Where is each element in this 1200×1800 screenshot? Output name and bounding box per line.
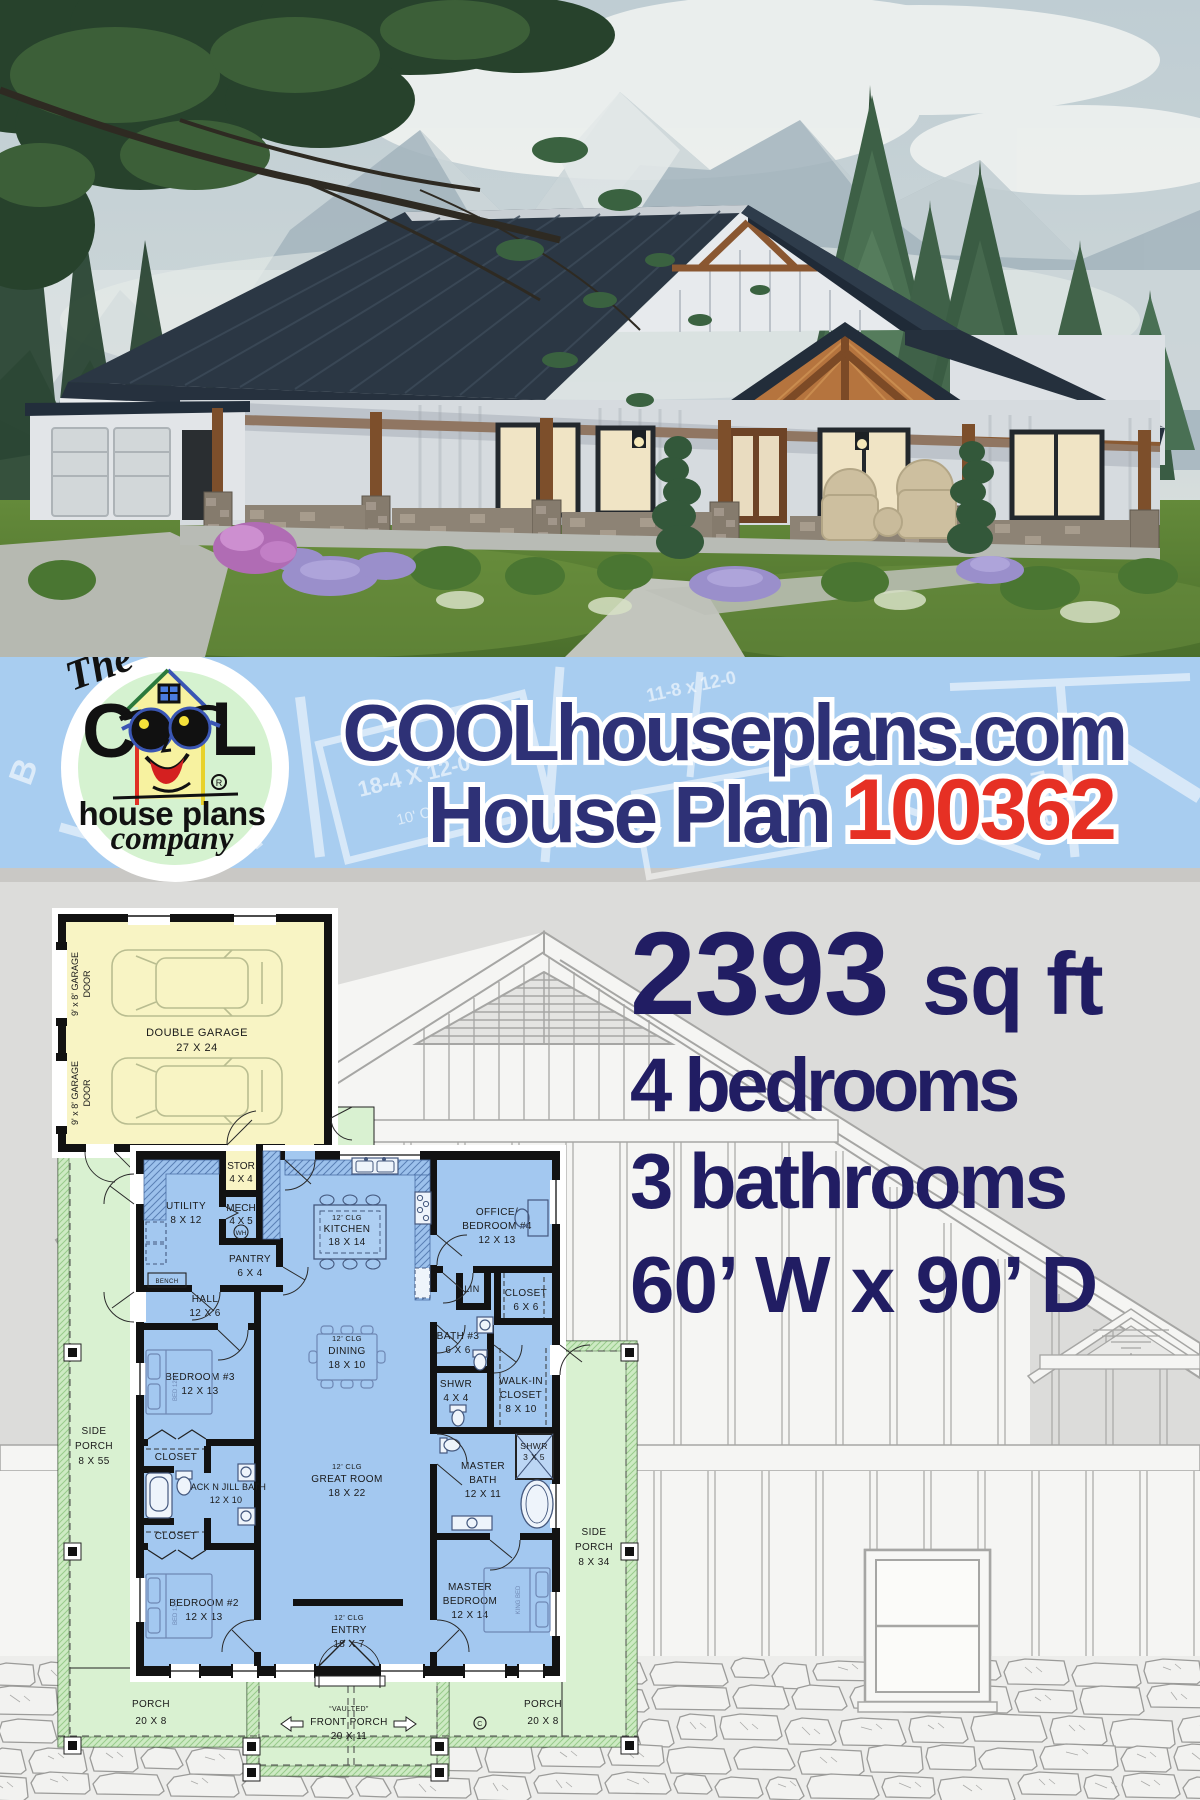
- svg-text:JACK N JILL BATH: JACK N JILL BATH: [186, 1482, 266, 1492]
- svg-text:12’ CLG: 12’ CLG: [332, 1334, 362, 1343]
- svg-text:WALK-IN: WALK-IN: [499, 1376, 543, 1387]
- svg-text:SHWR: SHWR: [520, 1441, 548, 1451]
- svg-text:SIDE: SIDE: [582, 1527, 607, 1538]
- svg-text:BEDROOM #2: BEDROOM #2: [169, 1598, 239, 1609]
- svg-text:12 X 13: 12 X 13: [185, 1612, 222, 1623]
- svg-text:BENCH: BENCH: [155, 1279, 178, 1285]
- svg-text:PORCH: PORCH: [75, 1441, 113, 1452]
- svg-text:20 X 8: 20 X 8: [135, 1716, 166, 1727]
- svg-text:PORCH: PORCH: [575, 1542, 613, 1553]
- svg-text:CLOSET: CLOSET: [155, 1452, 197, 1463]
- svg-text:KITCHEN: KITCHEN: [324, 1224, 371, 1235]
- svg-text:3 bathrooms: 3 bathrooms: [630, 1137, 1066, 1225]
- svg-text:20 X 8: 20 X 8: [527, 1716, 558, 1727]
- svg-text:6 X 6: 6 X 6: [513, 1302, 538, 1313]
- svg-text:DOOR: DOOR: [82, 970, 92, 998]
- svg-text:DINING: DINING: [328, 1346, 365, 1357]
- svg-text:C: C: [477, 1721, 482, 1728]
- svg-text:L: L: [211, 687, 256, 772]
- svg-text:8 X 10: 8 X 10: [505, 1404, 536, 1415]
- svg-text:PORCH: PORCH: [132, 1699, 170, 1710]
- svg-text:WH: WH: [236, 1230, 247, 1237]
- svg-text:8 X 34: 8 X 34: [578, 1557, 609, 1568]
- svg-text:BEDROOM: BEDROOM: [443, 1596, 497, 1607]
- svg-text:12’ CLG: 12’ CLG: [334, 1613, 364, 1622]
- svg-text:BED 12-0: BED 12-0: [173, 1598, 179, 1625]
- svg-text:6 X 4: 6 X 4: [237, 1268, 262, 1279]
- svg-text:“VAULTED”: “VAULTED”: [329, 1706, 369, 1713]
- svg-text:MASTER: MASTER: [461, 1461, 505, 1472]
- svg-text:3 X 5: 3 X 5: [523, 1452, 545, 1462]
- svg-text:GREAT ROOM: GREAT ROOM: [311, 1474, 382, 1485]
- svg-text:BATH: BATH: [469, 1475, 497, 1486]
- svg-text:4 X 4: 4 X 4: [229, 1174, 253, 1185]
- svg-text:DOOR: DOOR: [82, 1079, 92, 1107]
- svg-text:ENTRY: ENTRY: [331, 1625, 367, 1636]
- svg-text:12 X 10: 12 X 10: [210, 1495, 242, 1505]
- svg-text:8 X 55: 8 X 55: [78, 1456, 109, 1467]
- svg-text:18 X 22: 18 X 22: [328, 1488, 365, 1499]
- svg-text:C: C: [82, 689, 135, 774]
- svg-text:FRONT PORCH: FRONT PORCH: [310, 1717, 388, 1728]
- svg-text:CLOSET: CLOSET: [505, 1288, 547, 1299]
- svg-text:4 X 4: 4 X 4: [443, 1393, 468, 1404]
- svg-text:STOR: STOR: [227, 1161, 255, 1172]
- svg-text:27 X 24: 27 X 24: [176, 1042, 217, 1054]
- svg-text:PANTRY: PANTRY: [229, 1254, 271, 1265]
- svg-text:CLOSET: CLOSET: [500, 1390, 542, 1401]
- svg-text:SIDE: SIDE: [82, 1426, 107, 1437]
- svg-text:BED 12-0: BED 12-0: [173, 1374, 179, 1401]
- svg-text:BATH #3: BATH #3: [437, 1331, 480, 1342]
- svg-text:9' x 8' GARAGE: 9' x 8' GARAGE: [70, 952, 80, 1016]
- svg-text:MASTER: MASTER: [448, 1582, 492, 1593]
- svg-text:MECH: MECH: [226, 1203, 255, 1214]
- svg-text:12’ CLG: 12’ CLG: [332, 1213, 362, 1222]
- svg-text:House Plan: House Plan: [428, 770, 829, 859]
- svg-text:OFFICE/: OFFICE/: [476, 1207, 518, 1218]
- svg-text:18 X 10: 18 X 10: [328, 1360, 365, 1371]
- svg-text:company: company: [111, 821, 234, 857]
- svg-text:12 X 13: 12 X 13: [478, 1235, 515, 1246]
- svg-text:60’ W x 90’ D: 60’ W x 90’ D: [630, 1240, 1097, 1329]
- svg-text:20 X 11: 20 X 11: [331, 1731, 368, 1742]
- svg-text:12 X 13: 12 X 13: [181, 1386, 218, 1397]
- svg-text:8 X 12: 8 X 12: [170, 1215, 201, 1226]
- svg-text:9' x 8' GARAGE: 9' x 8' GARAGE: [70, 1061, 80, 1125]
- svg-text:18 X 14: 18 X 14: [328, 1237, 365, 1248]
- svg-text:4 bedrooms: 4 bedrooms: [630, 1043, 1018, 1128]
- svg-text:12’ CLG: 12’ CLG: [332, 1462, 362, 1471]
- svg-text:UTILITY: UTILITY: [166, 1201, 206, 1212]
- svg-text:PORCH: PORCH: [524, 1699, 562, 1710]
- svg-text:12 X 14: 12 X 14: [451, 1610, 488, 1621]
- svg-text:R: R: [216, 778, 223, 788]
- svg-text:SHWR: SHWR: [440, 1379, 472, 1390]
- svg-text:CLOSET: CLOSET: [155, 1531, 197, 1542]
- svg-text:KING BED: KING BED: [516, 1585, 522, 1614]
- svg-text:12 X 11: 12 X 11: [465, 1489, 502, 1500]
- svg-text:100362: 100362: [845, 762, 1114, 858]
- svg-text:DOUBLE GARAGE: DOUBLE GARAGE: [146, 1027, 248, 1039]
- svg-text:LIN: LIN: [464, 1284, 479, 1294]
